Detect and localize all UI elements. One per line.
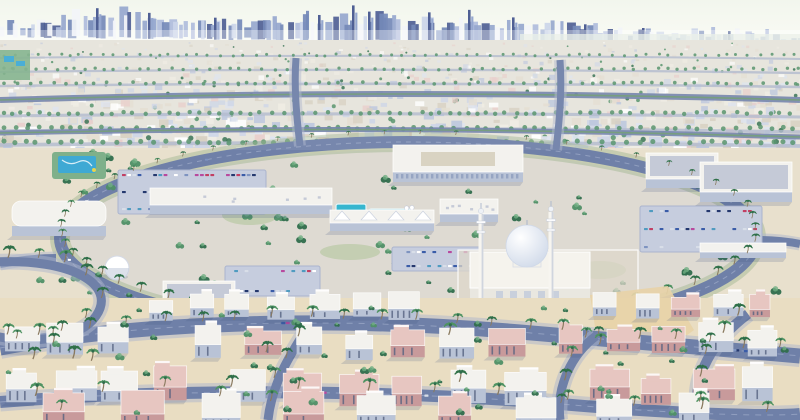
masterplan-image (0, 0, 800, 420)
water-park (52, 152, 106, 179)
school-building (388, 145, 523, 186)
masterplan-aerial-render (0, 0, 800, 420)
color-grade-overlay (0, 0, 800, 150)
mosque-dome (506, 225, 548, 267)
